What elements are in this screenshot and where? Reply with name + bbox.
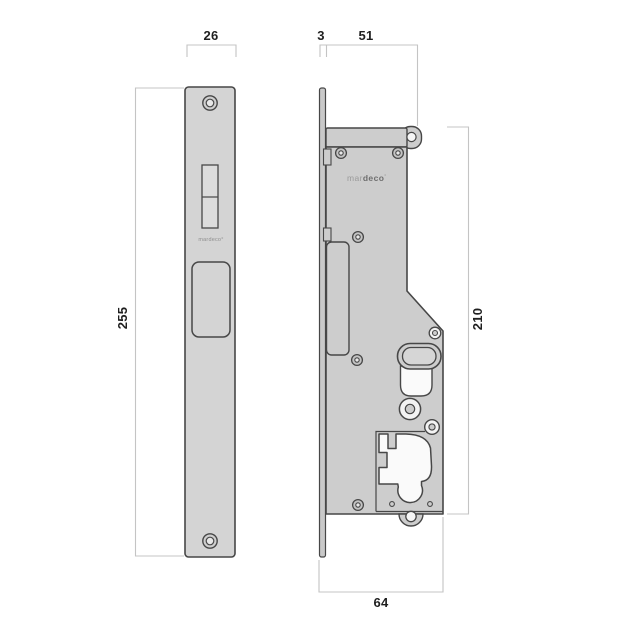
boss-corner-inner	[429, 424, 435, 430]
body-brand-mark: °	[384, 174, 386, 180]
body-brand-text: mardeco°	[347, 173, 387, 183]
dim-bracket-body-height	[447, 127, 469, 514]
dim-label-overall-width: 64	[373, 595, 389, 610]
cylinder-pill-inner	[403, 348, 437, 366]
bottom-hole-left	[390, 502, 395, 507]
technical-drawing-canvas: mardeco° mardeco°	[0, 0, 640, 640]
screw-top-right-inner	[396, 151, 400, 155]
lock-drawing-svg: mardeco° mardeco°	[0, 0, 640, 640]
front-bottom-screw-inner	[206, 537, 214, 545]
front-brand-text: mardeco°	[198, 237, 223, 243]
screw-lower-inner	[355, 358, 359, 362]
front-pull-cutout	[192, 262, 230, 337]
dim-label-body-height: 210	[470, 308, 485, 331]
dim-label-plate-thickness: 3	[317, 28, 325, 43]
latch-panel	[327, 242, 350, 355]
screw-top-left-inner	[339, 151, 343, 155]
body-top-plate	[326, 128, 407, 147]
body-brand-prefix: mar	[347, 173, 363, 183]
dim-bracket-front-height	[136, 88, 185, 556]
bottom-hole-right	[428, 502, 433, 507]
cylinder-body-cutout	[401, 366, 433, 396]
ear-hole	[407, 132, 416, 141]
front-plate-view: mardeco°	[185, 87, 235, 557]
edge-notch-top	[324, 149, 332, 165]
side-body-view: mardeco°	[320, 88, 444, 557]
dim-bracket-front-width	[187, 45, 236, 57]
edge-notch-mid	[324, 228, 332, 241]
bottom-tab-hole	[406, 511, 416, 521]
boss-diagonal-inner	[433, 331, 438, 336]
dim-label-front-width: 26	[203, 28, 218, 43]
screw-bottom-inner	[356, 503, 360, 507]
front-top-screw-inner	[206, 99, 214, 107]
body-brand-bold: deco	[363, 173, 384, 183]
dim-bracket-side-top	[320, 45, 418, 126]
dim-label-body-width: 51	[358, 28, 373, 43]
dim-bracket-overall-width	[319, 517, 443, 592]
dim-label-front-height: 255	[115, 307, 130, 330]
hub-inner	[405, 404, 414, 413]
screw-mid-inner	[356, 235, 360, 239]
